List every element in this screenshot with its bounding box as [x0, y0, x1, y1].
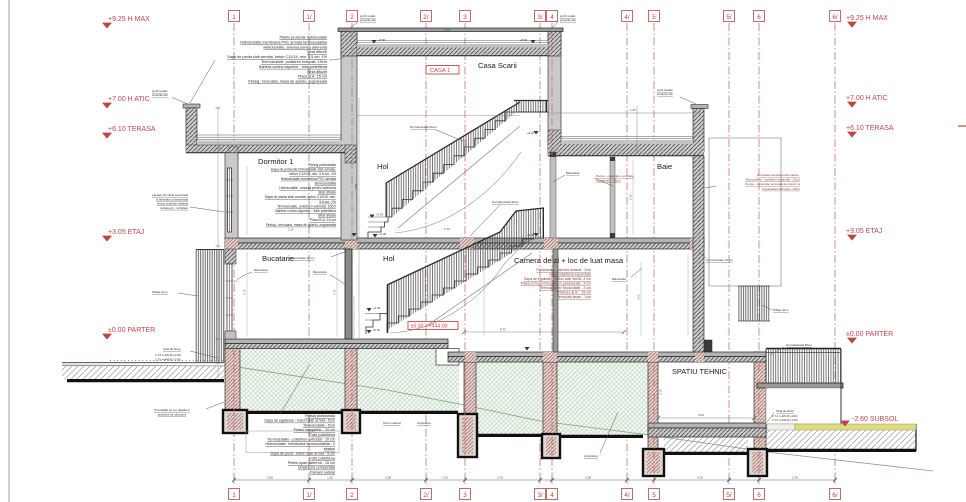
svg-text:6: 6	[757, 14, 761, 21]
svg-text:Strat difuzie: Strat difuzie	[318, 191, 336, 195]
svg-text:Nu balustrada 90cm: Nu balustrada 90cm	[410, 125, 437, 129]
svg-text:-2.60 SUBSOL: -2.60 SUBSOL	[852, 416, 898, 423]
svg-text:protectie atic: protectie atic	[657, 92, 673, 96]
svg-text:2: 2	[350, 492, 354, 499]
svg-text:1.22: 1.22	[442, 476, 448, 480]
svg-text:+3.05: +3.05	[527, 233, 535, 237]
svg-text:2.20: 2.20	[288, 228, 294, 232]
svg-text:Folie polietilena: Folie polietilena	[309, 433, 336, 437]
svg-text:Pamant natural: Pamant natural	[310, 470, 335, 474]
svg-text:Riflaje lemn: Riflaje lemn	[152, 290, 168, 294]
svg-text:1/: 1/	[306, 14, 312, 21]
svg-text:*Fundatiile se vor detalia in: *Fundatiile se vor detalia in	[154, 408, 190, 412]
svg-text:2.75: 2.75	[333, 289, 337, 295]
svg-text:Sapa de panta slab armata, bet: Sapa de panta slab armata, beton C12/15,…	[227, 55, 327, 59]
svg-text:Termoizolatie, polistiren extr: Termoizolatie, polistiren extrudat, 15cm	[261, 60, 327, 64]
svg-text:Sapa de egalizare - beton slab: Sapa de egalizare - beton slab armat - 5…	[264, 419, 335, 423]
svg-text:proiectul de structura: proiectul de structura	[158, 413, 186, 417]
svg-text:2.40: 2.40	[629, 194, 633, 200]
svg-text:+9.25 H MAX: +9.25 H MAX	[108, 16, 150, 23]
svg-text:Sapa de egalizare - beton slab: Sapa de egalizare - beton slab armat -4 …	[524, 277, 591, 281]
svg-text:+7.00 H ATIC: +7.00 H ATIC	[108, 96, 150, 103]
svg-text:4: 4	[550, 14, 554, 21]
svg-text:1.30: 1.30	[327, 476, 333, 480]
svg-text:Sapa de protectie hidroizolati: Sapa de protectie hidroizolatie slab arm…	[271, 168, 336, 172]
svg-text:Finisaj pardoseala: Finisaj pardoseala	[305, 414, 336, 418]
svg-text:3/: 3/	[537, 492, 543, 499]
svg-text:protectie atic: protectie atic	[360, 18, 376, 22]
svg-text:Nu balustrada 90cm: Nu balustrada 90cm	[786, 343, 812, 347]
svg-text:+6.10 TERASA: +6.10 TERASA	[108, 126, 156, 133]
svg-text:straturi: straturi	[324, 447, 335, 451]
svg-text:Nu balustrada 90cm: Nu balustrada 90cm	[492, 200, 519, 204]
svg-text:Perete - caramida, tencuiala d: Perete - caramida, tencuiala de interior…	[745, 182, 800, 186]
svg-text:Teren natural: Teren natural	[383, 421, 401, 425]
svg-text:+6.10: +6.10	[527, 131, 535, 135]
svg-text:2.28: 2.28	[585, 476, 591, 480]
svg-text:+3.39: +3.39	[376, 213, 384, 217]
svg-text:±0.00 PARTER: ±0.00 PARTER	[108, 327, 155, 334]
svg-text:+3.05 ETAJ: +3.05 ETAJ	[108, 229, 144, 236]
svg-text:Pietris protectie hidroizolati: Pietris protectie hidroizolatie	[280, 36, 327, 40]
svg-text:Finisaj pardoseala: Finisaj pardoseala	[308, 163, 336, 167]
svg-text:Bariera contra vaporilor - fol: Bariera contra vaporilor - folie polieti…	[275, 209, 336, 213]
svg-text:Strat difuzie: Strat difuzie	[307, 70, 327, 74]
svg-text:1: 1	[232, 492, 236, 499]
svg-text:5: 5	[652, 14, 656, 21]
svg-text:5/: 5/	[726, 492, 732, 499]
svg-text:Umplutura: Umplutura	[417, 421, 431, 425]
svg-text:6: 6	[757, 492, 761, 499]
svg-text:5: 5	[652, 492, 656, 499]
svg-text:Strat difuzie: Strat difuzie	[318, 214, 336, 218]
svg-text:Strat difuzie: Strat difuzie	[307, 50, 327, 54]
svg-text:Balustrada: Balustrada	[254, 268, 268, 272]
svg-text:±0.00: ±0.00	[373, 328, 380, 332]
svg-text:culoare gri - inchidere: culoare gri - inchidere	[160, 206, 188, 210]
svg-text:Balustrada: Balustrada	[313, 270, 327, 274]
svg-text:Folie polietilena: Folie polietilena	[309, 456, 336, 460]
svg-text:Termoizolatie - polistiren ext: Termoizolatie - polistiren extrudat - 10…	[268, 438, 335, 442]
svg-text:2.33: 2.33	[497, 476, 503, 480]
svg-text:Placa B.A. 15 cm: Placa B.A. 15 cm	[310, 218, 336, 222]
svg-text:Planseu B.A. - 15 cm: Planseu B.A. - 15 cm	[558, 291, 591, 295]
svg-text:Tencuiala tavan - 1cm: Tencuiala tavan - 1cm	[557, 295, 591, 299]
svg-text:3/: 3/	[537, 14, 543, 21]
svg-text:Hol: Hol	[383, 254, 395, 263]
svg-text:Hol: Hol	[377, 162, 389, 171]
svg-text:6/: 6/	[832, 14, 838, 21]
svg-text:+8.90: +8.90	[378, 38, 386, 42]
svg-text:Placa cu buloni incalzire in p: Placa cu buloni incalzire in pardoseala …	[521, 282, 591, 286]
svg-text:2.98: 2.98	[354, 184, 358, 190]
svg-text:1.06: 1.06	[630, 108, 636, 112]
svg-text:2.28: 2.28	[385, 476, 391, 480]
svg-text:protectie atic: protectie atic	[152, 93, 168, 97]
svg-text:Termoizolatie - 5cm: Termoizolatie - 5cm	[303, 423, 335, 427]
svg-text:6.70: 6.70	[444, 28, 450, 32]
svg-text:Umplutura compactata: Umplutura compactata	[298, 466, 336, 470]
svg-text:Balustrada: Balustrada	[566, 171, 580, 175]
svg-text:+0.48: +0.48	[373, 306, 381, 310]
svg-text:4: 4	[550, 492, 554, 499]
svg-text:+3.05 ETAJ: +3.05 ETAJ	[846, 228, 882, 235]
svg-text:Termoizolatie 10 cm: Termoizolatie 10 cm	[706, 258, 733, 262]
svg-text:Placa B.A. 15 cm: Placa B.A. 15 cm	[298, 75, 327, 79]
svg-text:1/: 1/	[306, 492, 312, 499]
svg-text:2.38: 2.38	[659, 389, 663, 395]
svg-text:Dormitor 1: Dormitor 1	[258, 157, 293, 166]
svg-text:±0.00 PARTER: ±0.00 PARTER	[846, 331, 893, 338]
svg-text:Hidroizolatie, amorsa pentru a: Hidroizolatie, amorsa pentru aderenta	[279, 186, 336, 190]
svg-text:beton C12/15, min. 3.5 cm, 1%: beton C12/15, min. 3.5 cm, 1%	[289, 172, 336, 176]
svg-text:6.70: 6.70	[444, 227, 450, 231]
svg-text:Hidroizolatie: membrana termos: Hidroizolatie: membrana termosudabila - …	[266, 442, 335, 446]
svg-text:Pietris spart asternut - 15 cm: Pietris spart asternut - 15 cm	[288, 461, 335, 465]
svg-text:Tencuiala exterioara decorativ: Tencuiala exterioara decorativa -	[757, 173, 800, 177]
svg-text:+8.90: +8.90	[520, 38, 528, 42]
svg-text:2.34: 2.34	[792, 476, 798, 480]
svg-text:3.00: 3.00	[698, 413, 704, 417]
svg-text:CASA 1: CASA 1	[430, 68, 450, 74]
svg-text:C.T.N =+443.20 (-2.99): C.T.N =+443.20 (-2.99)	[772, 419, 798, 422]
svg-text:5/: 5/	[726, 14, 732, 21]
svg-text:2.75: 2.75	[243, 289, 247, 295]
svg-text:Strat de bitum: Strat de bitum	[163, 347, 182, 351]
svg-text:Casa Scarii: Casa Scarii	[478, 61, 517, 70]
svg-text:Termoizolatie/ fonoizolatie -: Termoizolatie/ fonoizolatie - 3 cm	[540, 286, 591, 290]
svg-text:2/: 2/	[423, 14, 429, 21]
svg-text:+6.10 TERASA: +6.10 TERASA	[846, 125, 894, 132]
svg-text:4/: 4/	[624, 14, 630, 21]
svg-text:Perete - caramida, tencuiala,: Perete - caramida, tencuiala,	[596, 174, 635, 178]
svg-text:SPATIU TEHNIC: SPATIU TEHNIC	[672, 367, 728, 376]
svg-text:Bariera contra vaporilor - fol: Bariera contra vaporilor - folie polieti…	[259, 65, 328, 69]
svg-text:zugraveala interioara - 25cm: zugraveala interioara - 25cm	[762, 187, 801, 191]
svg-text:termosudabila: termosudabila	[315, 181, 336, 185]
svg-text:2: 2	[350, 14, 354, 21]
svg-text:Sapa de poza - beton slab arma: Sapa de poza - beton slab armat - 5 cm	[270, 452, 335, 456]
svg-text:C.T.N =+444.95 (-0.95): C.T.N =+444.95 (-0.95)	[155, 359, 181, 362]
svg-text:3: 3	[463, 14, 467, 21]
svg-text:Umplutura: Umplutura	[584, 454, 598, 458]
svg-text:Termoizolatie, polistiren extr: Termoizolatie, polistiren extrudat, 15cm	[277, 204, 336, 208]
svg-text:C.T.A =+445.40 (+0.60): C.T.A =+445.40 (+0.60)	[155, 354, 181, 357]
svg-text:Pardoseala - parchet laminat -: Pardoseala - parchet laminat - 2cm	[537, 268, 592, 272]
svg-text:C.T.A =+445.40 (-2.60): C.T.A =+445.40 (-2.60)	[772, 415, 797, 418]
svg-text:Pietris margaritar - 10 cm: Pietris margaritar - 10 cm	[294, 428, 335, 432]
svg-text:Riflaje lemn: Riflaje lemn	[773, 308, 789, 312]
svg-text:Termosistem - polistiren expan: Termosistem - polistiren expandat - 15cm	[745, 178, 800, 182]
svg-text:6/: 6/	[832, 492, 838, 499]
svg-text:Folie polietilena expandata: Folie polietilena expandata	[549, 273, 591, 277]
svg-text:+9.25 H MAX: +9.25 H MAX	[846, 15, 888, 22]
svg-text:Baie: Baie	[657, 162, 672, 171]
svg-text:4/: 4/	[624, 492, 630, 499]
svg-text:Hidroizolatie membrana PVC arm: Hidroizolatie membrana PVC armata	[281, 177, 336, 181]
svg-text:Termoizolatie 10 cm: Termoizolatie 10 cm	[288, 256, 315, 260]
svg-text:+3.08: +3.08	[379, 232, 387, 236]
svg-text:3.5 cm, 1%: 3.5 cm, 1%	[319, 200, 336, 204]
svg-text:8.73: 8.73	[500, 328, 506, 332]
svg-text:Hidroizolatie membrana PVC arm: Hidroizolatie membrana PVC armata termos…	[240, 40, 328, 44]
svg-text:1: 1	[232, 14, 236, 21]
svg-text:Hidroizolatie, amorsa pentru a: Hidroizolatie, amorsa pentru aderenta	[263, 45, 327, 49]
svg-text:3: 3	[463, 492, 467, 499]
svg-text:protectie atic: protectie atic	[560, 18, 576, 22]
svg-text:2.05: 2.05	[267, 476, 273, 480]
svg-text:Sapa de panta slab armata, bet: Sapa de panta slab armata, beton C12/15,…	[265, 195, 336, 199]
svg-text:5.15: 5.15	[697, 476, 703, 480]
svg-text:Camera de zi + loc de luat mas: Camera de zi + loc de luat masa	[514, 256, 624, 265]
svg-text:3.05: 3.05	[637, 294, 641, 300]
svg-text:2/: 2/	[423, 492, 429, 499]
svg-text:Strat de bitum: Strat de bitum	[776, 409, 795, 413]
svg-text:Finisaj : tencuiala, masa de s: Finisaj : tencuiala, masa de spaclu, zug…	[266, 223, 336, 227]
svg-text:Finisaj : tencuiala, masa de s: Finisaj : tencuiala, masa de spaclu, zug…	[248, 80, 328, 84]
svg-text:+7.00 H ATIC: +7.00 H ATIC	[846, 95, 888, 102]
svg-text:Balustrada: Balustrada	[612, 277, 626, 281]
